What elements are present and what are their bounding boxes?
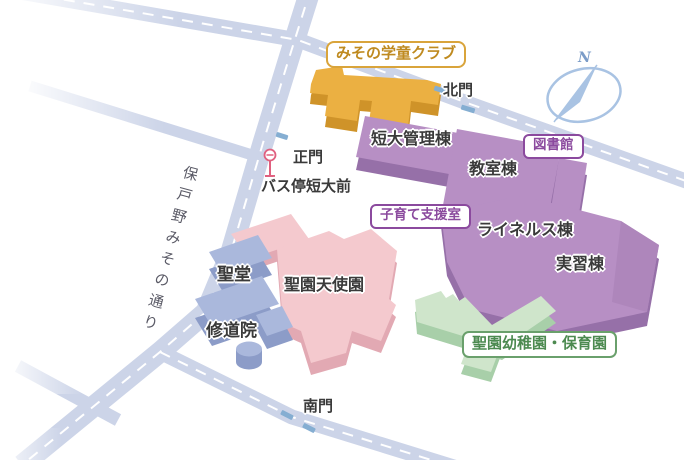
label-reiners: ライネルス棟 bbox=[477, 216, 573, 240]
label-monastery: 修道院 bbox=[206, 316, 257, 341]
label-kindergarten: 聖園幼稚園・保育園 bbox=[462, 331, 617, 358]
campus-map: みその学童クラブ 北門 短大管理棟 図書館 教室棟 正門 バス停短大前 子育て支… bbox=[0, 0, 684, 460]
label-chapel: 聖堂 bbox=[217, 260, 251, 285]
label-tenshien: 聖園天使園 bbox=[284, 271, 364, 295]
label-north-gate: 北門 bbox=[443, 79, 473, 100]
label-childcare-support: 子育て支援室 bbox=[370, 204, 471, 229]
map-canvas bbox=[0, 0, 684, 460]
label-gakudo-club: みその学童クラブ bbox=[326, 41, 466, 68]
label-bus-stop: バス停短大前 bbox=[261, 175, 351, 196]
label-south-gate: 南門 bbox=[303, 395, 333, 416]
road-fade-west bbox=[15, 70, 165, 140]
label-library: 図書館 bbox=[523, 134, 584, 159]
road-fade-southwest bbox=[0, 346, 82, 394]
label-training: 実習棟 bbox=[556, 250, 604, 274]
road-fade-northwest bbox=[0, 0, 180, 62]
building-monastery-tower-top bbox=[236, 342, 262, 357]
compass-north-label: N bbox=[578, 50, 591, 66]
label-tandai-admin: 短大管理棟 bbox=[371, 125, 451, 149]
main-gate-marker bbox=[276, 132, 289, 140]
compass-icon bbox=[542, 61, 626, 129]
label-main-gate: 正門 bbox=[293, 146, 323, 167]
road-fade-corner bbox=[0, 428, 62, 460]
label-classroom: 教室棟 bbox=[469, 155, 517, 179]
